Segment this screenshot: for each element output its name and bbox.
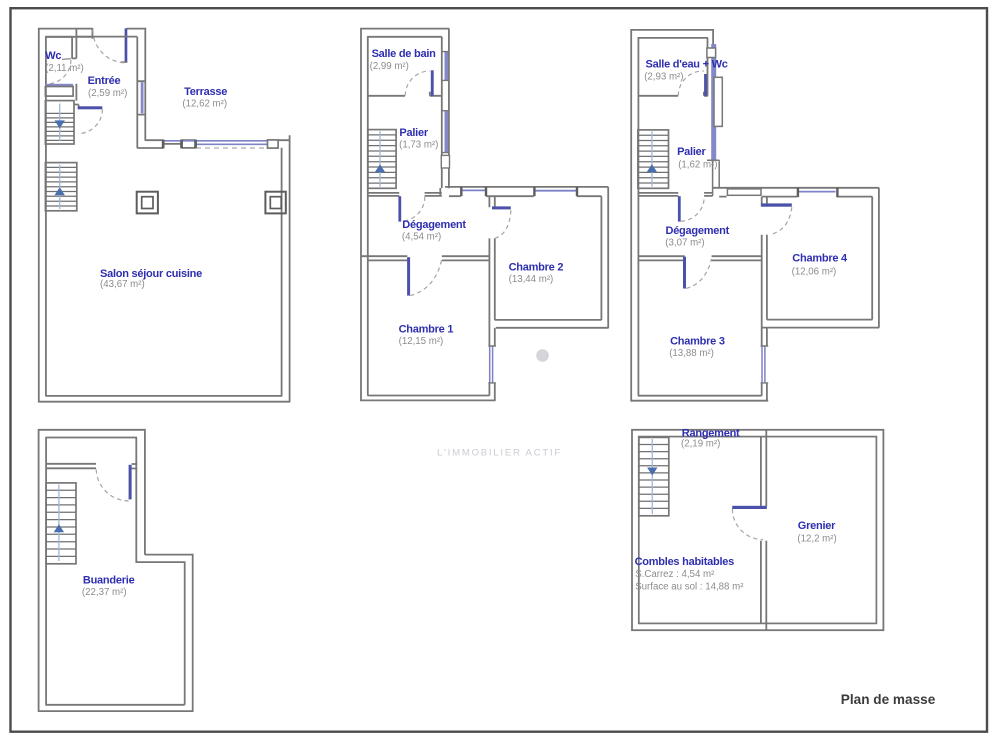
svg-text:Chambre 4: Chambre 4 xyxy=(792,253,848,265)
svg-text:S.Carrez : 4,54 m²: S.Carrez : 4,54 m² xyxy=(635,569,715,580)
svg-text:Entrée: Entrée xyxy=(88,75,121,87)
svg-text:(2,93 m²): (2,93 m²) xyxy=(644,71,683,82)
svg-text:(12,2 m²): (12,2 m²) xyxy=(797,533,836,544)
svg-text:(43,67 m²): (43,67 m²) xyxy=(100,279,145,290)
svg-text:(22,37 m²): (22,37 m²) xyxy=(82,587,127,598)
svg-text:Surface au sol : 14,88 m²: Surface au sol : 14,88 m² xyxy=(635,581,744,592)
svg-text:(4,54 m²): (4,54 m²) xyxy=(402,232,441,243)
svg-text:Salon séjour cuisine: Salon séjour cuisine xyxy=(100,268,202,280)
svg-text:Chambre 3: Chambre 3 xyxy=(670,335,725,347)
svg-text:(1,62 m²): (1,62 m²) xyxy=(678,160,717,171)
svg-text:(2,11 m²): (2,11 m²) xyxy=(45,63,84,74)
svg-text:Buanderie: Buanderie xyxy=(83,575,135,587)
svg-text:Plan de masse: Plan de masse xyxy=(841,692,936,707)
svg-text:Chambre 1: Chambre 1 xyxy=(399,323,454,335)
svg-text:(2,59 m²): (2,59 m²) xyxy=(88,88,127,99)
svg-text:Palier: Palier xyxy=(399,127,428,139)
svg-text:(3,07 m²): (3,07 m²) xyxy=(665,238,704,249)
svg-text:Chambre 2: Chambre 2 xyxy=(509,261,564,273)
svg-text:(12,62 m²): (12,62 m²) xyxy=(182,99,227,110)
svg-text:(1,73 m²): (1,73 m²) xyxy=(399,140,438,151)
svg-text:Combles habitables: Combles habitables xyxy=(635,556,735,568)
svg-text:Salle de bain: Salle de bain xyxy=(372,48,437,60)
svg-text:Terrasse: Terrasse xyxy=(184,86,227,98)
svg-text:(13,88 m²): (13,88 m²) xyxy=(669,348,714,359)
svg-text:(2,19 m²): (2,19 m²) xyxy=(681,439,720,450)
svg-text:Grenier: Grenier xyxy=(798,520,836,532)
svg-text:Palier: Palier xyxy=(677,146,706,158)
svg-text:L'IMMOBILIER ACTIF: L'IMMOBILIER ACTIF xyxy=(437,448,562,459)
svg-text:Dégagement: Dégagement xyxy=(666,225,730,237)
svg-text:(2,99 m²): (2,99 m²) xyxy=(370,61,409,72)
svg-text:(13,44 m²): (13,44 m²) xyxy=(509,274,554,285)
svg-text:Rangement: Rangement xyxy=(682,427,740,439)
svg-text:Wc: Wc xyxy=(45,50,61,62)
svg-text:Salle d'eau + Wc: Salle d'eau + Wc xyxy=(646,58,728,70)
svg-text:(12,15 m²): (12,15 m²) xyxy=(399,336,444,347)
svg-text:Dégagement: Dégagement xyxy=(402,219,466,231)
svg-text:(12,06 m²): (12,06 m²) xyxy=(792,267,837,278)
